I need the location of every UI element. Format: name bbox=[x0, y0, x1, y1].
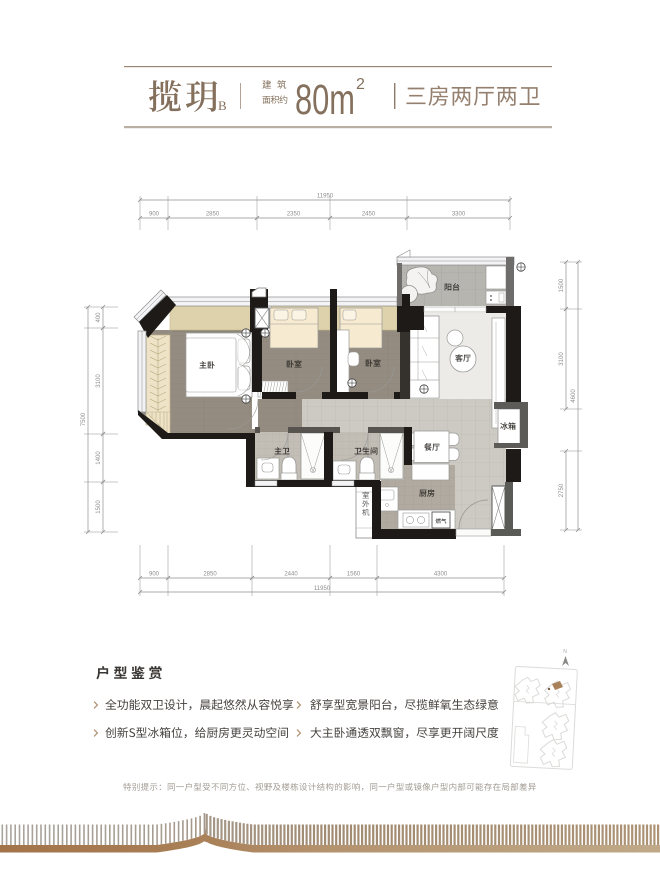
svg-text:4300: 4300 bbox=[434, 572, 448, 578]
svg-text:80m: 80m bbox=[295, 76, 355, 124]
svg-text:7500: 7500 bbox=[81, 412, 87, 426]
svg-text:4600: 4600 bbox=[571, 389, 577, 403]
svg-text:900: 900 bbox=[149, 572, 160, 578]
svg-text:1500: 1500 bbox=[96, 500, 102, 514]
svg-text:1560: 1560 bbox=[347, 572, 361, 578]
svg-text:B: B bbox=[218, 98, 227, 113]
svg-text:3300: 3300 bbox=[452, 212, 466, 218]
svg-text:3100: 3100 bbox=[96, 374, 102, 388]
svg-text:3100: 3100 bbox=[559, 352, 565, 366]
svg-text:2850: 2850 bbox=[203, 572, 217, 578]
svg-text:1500: 1500 bbox=[559, 278, 565, 292]
svg-text:11950: 11950 bbox=[317, 194, 334, 200]
svg-text:400: 400 bbox=[96, 312, 102, 323]
svg-text:2850: 2850 bbox=[206, 212, 220, 218]
svg-text:11950: 11950 bbox=[314, 586, 331, 592]
svg-text:2750: 2750 bbox=[559, 483, 565, 497]
svg-text:2350: 2350 bbox=[287, 212, 301, 218]
svg-text:2450: 2450 bbox=[362, 212, 376, 218]
svg-text:900: 900 bbox=[149, 212, 160, 218]
svg-text:N: N bbox=[563, 649, 567, 655]
svg-text:2: 2 bbox=[356, 76, 365, 93]
svg-text:1400: 1400 bbox=[96, 451, 102, 465]
svg-text:2440: 2440 bbox=[284, 572, 298, 578]
